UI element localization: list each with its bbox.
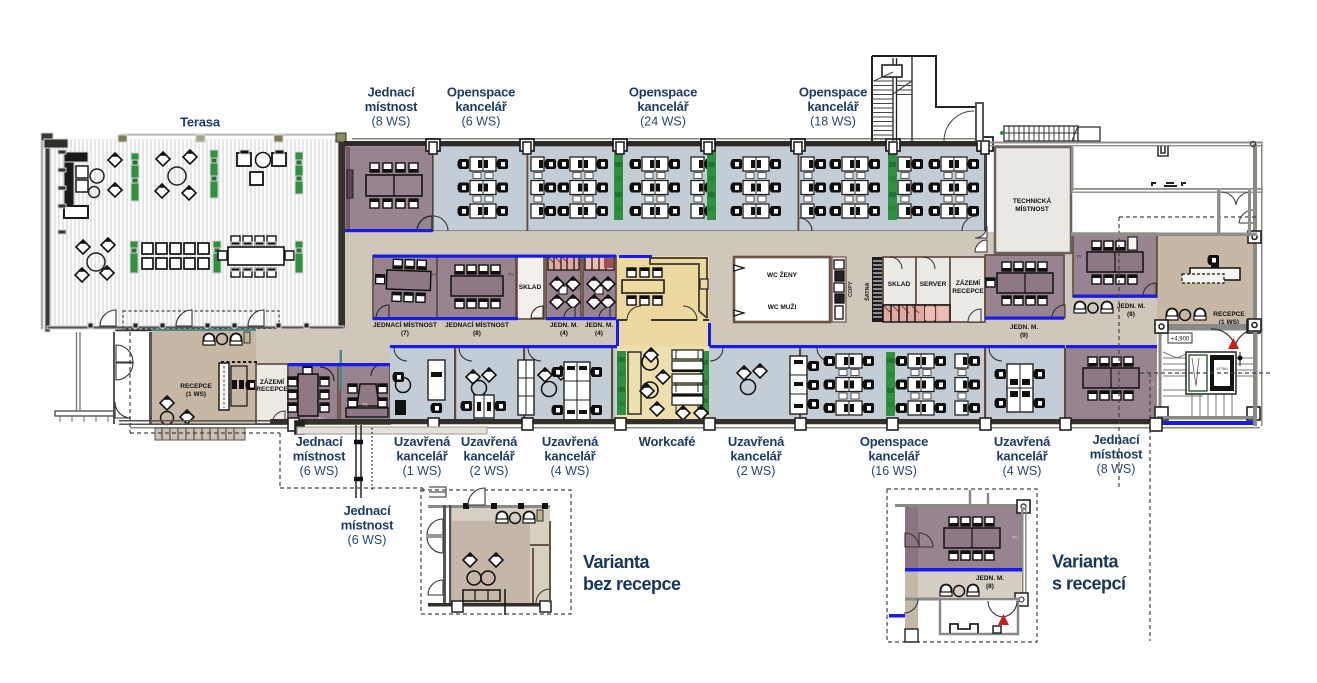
svg-text:MÍSTNOST: MÍSTNOST xyxy=(1015,204,1049,213)
svg-text:(4): (4) xyxy=(595,330,603,337)
svg-text:TV: TV xyxy=(362,402,368,407)
svg-text:kancelář: kancelář xyxy=(463,449,515,464)
svg-text:Jednací: Jednací xyxy=(1092,432,1140,447)
svg-text:ZÁZEMÍ: ZÁZEMÍ xyxy=(956,278,980,287)
svg-text:JEDN. M.: JEDN. M. xyxy=(976,575,1004,582)
svg-text:+4,900: +4,900 xyxy=(1171,337,1190,343)
svg-text:(6 WS): (6 WS) xyxy=(462,115,501,129)
svg-text:JEDNACÍ MÍSTNOST: JEDNACÍ MÍSTNOST xyxy=(445,320,509,329)
svg-text:Terasa: Terasa xyxy=(180,115,221,130)
svg-text:(2 WS): (2 WS) xyxy=(737,464,776,478)
svg-text:bez recepce: bez recepce xyxy=(583,574,681,594)
svg-text:(8 WS): (8 WS) xyxy=(1097,462,1136,476)
svg-text:(24 WS): (24 WS) xyxy=(640,115,686,129)
svg-text:(6 WS): (6 WS) xyxy=(348,533,387,547)
svg-text:Uzavřená: Uzavřená xyxy=(728,434,785,449)
svg-text:Jednací: Jednací xyxy=(343,503,391,518)
svg-text:WC MUŽI: WC MUŽI xyxy=(768,302,797,311)
svg-text:místnost: místnost xyxy=(365,99,418,114)
svg-text:kancelář: kancelář xyxy=(807,99,859,114)
svg-text:RECEPCE: RECEPCE xyxy=(180,383,212,390)
svg-text:s recepcí: s recepcí xyxy=(1052,574,1127,594)
svg-text:TV: TV xyxy=(574,286,580,291)
svg-text:Openspace: Openspace xyxy=(629,85,697,100)
svg-text:(1 WS): (1 WS) xyxy=(403,464,442,478)
svg-text:(6 WS): (6 WS) xyxy=(300,464,339,478)
svg-text:SKLAD: SKLAD xyxy=(519,284,542,291)
svg-text:(4): (4) xyxy=(560,330,568,337)
svg-text:(7): (7) xyxy=(401,330,409,337)
svg-text:COPY: COPY xyxy=(848,281,854,297)
svg-text:Uzavřená: Uzavřená xyxy=(461,434,518,449)
svg-text:TV: TV xyxy=(508,272,514,277)
svg-text:Workcafé: Workcafé xyxy=(639,434,696,449)
svg-text:(18 WS): (18 WS) xyxy=(810,115,856,129)
svg-text:TV: TV xyxy=(1012,535,1018,540)
svg-text:(2 WS): (2 WS) xyxy=(470,464,509,478)
svg-text:(8): (8) xyxy=(1127,311,1135,318)
svg-text:ZÁZEMÍ: ZÁZEMÍ xyxy=(260,377,284,386)
svg-text:SKLAD: SKLAD xyxy=(888,281,911,288)
svg-text:JEDN. M.: JEDN. M. xyxy=(1117,303,1145,310)
svg-text:Jednací: Jednací xyxy=(295,434,343,449)
svg-text:(4 WS): (4 WS) xyxy=(1003,464,1042,478)
svg-text:JEDN. M.: JEDN. M. xyxy=(1010,324,1038,331)
svg-text:(1 WS): (1 WS) xyxy=(186,391,206,398)
svg-text:místnost: místnost xyxy=(1090,447,1143,462)
svg-text:RECEPCE: RECEPCE xyxy=(952,288,984,295)
svg-text:TV: TV xyxy=(1148,381,1154,386)
svg-text:RECEPCE: RECEPCE xyxy=(256,386,288,393)
svg-text:Uzavřená: Uzavřená xyxy=(542,434,599,449)
svg-text:(16 WS): (16 WS) xyxy=(871,464,917,478)
svg-text:Openspace: Openspace xyxy=(447,85,515,100)
svg-text:Openspace: Openspace xyxy=(860,434,928,449)
svg-text:místnost: místnost xyxy=(293,449,346,464)
svg-text:kancelář: kancelář xyxy=(868,449,920,464)
svg-text:JEDNACÍ MÍSTNOST: JEDNACÍ MÍSTNOST xyxy=(373,320,437,329)
svg-text:kancelář: kancelář xyxy=(730,449,782,464)
svg-text:kancelář: kancelář xyxy=(637,99,689,114)
svg-text:kancelář: kancelář xyxy=(544,449,596,464)
svg-text:Openspace: Openspace xyxy=(799,85,867,100)
svg-text:Uzavřená: Uzavřená xyxy=(394,434,451,449)
svg-text:(8 WS): (8 WS) xyxy=(372,115,411,129)
svg-text:TECHNICKÁ: TECHNICKÁ xyxy=(1013,196,1052,205)
svg-text:(8): (8) xyxy=(473,330,481,337)
svg-text:(8): (8) xyxy=(986,583,994,590)
svg-text:TV: TV xyxy=(431,272,437,277)
svg-text:ŠATNA: ŠATNA xyxy=(863,282,871,301)
svg-text:WC ŽENY: WC ŽENY xyxy=(767,270,798,279)
svg-text:kancelář: kancelář xyxy=(455,99,507,114)
svg-text:Varianta: Varianta xyxy=(1052,552,1120,572)
svg-text:kancelář: kancelář xyxy=(996,449,1048,464)
svg-text:(4 WS): (4 WS) xyxy=(551,464,590,478)
svg-text:JEDN. M.: JEDN. M. xyxy=(585,322,613,329)
svg-text:SERVER: SERVER xyxy=(920,281,947,288)
svg-text:Uzavřená: Uzavřená xyxy=(994,434,1051,449)
svg-text:(9): (9) xyxy=(1020,332,1028,339)
svg-text:Varianta: Varianta xyxy=(583,552,651,572)
svg-text:RECEPCE: RECEPCE xyxy=(1213,311,1245,318)
svg-text:JEDN. M.: JEDN. M. xyxy=(550,322,578,329)
svg-text:kancelář: kancelář xyxy=(396,449,448,464)
svg-text:Jednací: Jednací xyxy=(367,85,415,100)
svg-text:TV: TV xyxy=(1076,254,1082,259)
svg-text:místnost: místnost xyxy=(341,518,394,533)
svg-text:VÝTAH: VÝTAH xyxy=(1216,367,1228,371)
